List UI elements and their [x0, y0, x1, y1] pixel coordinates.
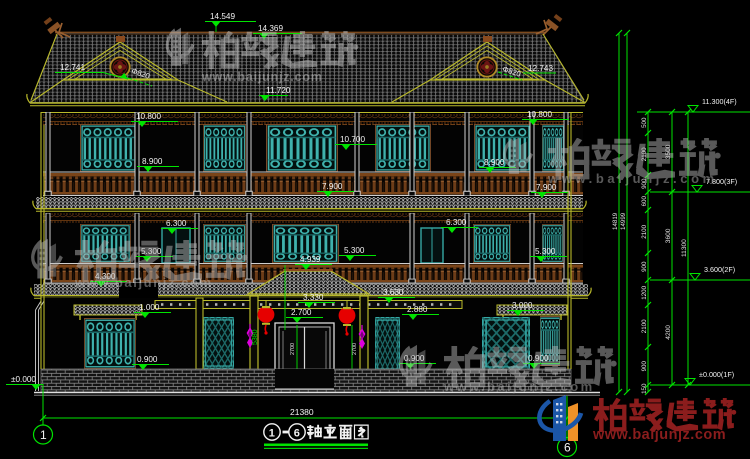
- svg-text:1: 1: [40, 428, 47, 442]
- svg-text:0.900: 0.900: [137, 355, 158, 364]
- svg-text:3600: 3600: [665, 228, 672, 243]
- svg-text:5.300: 5.300: [535, 247, 556, 256]
- svg-text:11.300(4F): 11.300(4F): [702, 97, 737, 106]
- svg-text:www.baijunjz.com: www.baijunjz.com: [443, 379, 595, 394]
- svg-text:1: 1: [269, 427, 275, 439]
- svg-text:500: 500: [641, 117, 648, 128]
- svg-text:10.700: 10.700: [340, 135, 365, 144]
- svg-text:3.600(2F): 3.600(2F): [704, 265, 735, 274]
- svg-text:5.300: 5.300: [344, 246, 365, 255]
- svg-text:www.baijunjz.com: www.baijunjz.com: [201, 70, 323, 84]
- svg-text:14999: 14999: [620, 212, 627, 230]
- svg-text:www.baijunjz.com: www.baijunjz.com: [592, 427, 726, 443]
- svg-text:3.330: 3.330: [303, 293, 324, 302]
- svg-text:www.baijunjz.com: www.baijunjz.com: [547, 171, 718, 186]
- svg-text:14.369: 14.369: [258, 24, 283, 33]
- svg-text:2.700: 2.700: [291, 308, 312, 317]
- svg-text:1.000: 1.000: [139, 303, 160, 312]
- svg-text:4.939: 4.939: [300, 255, 321, 264]
- svg-text:6.300: 6.300: [446, 218, 467, 227]
- svg-text:900: 900: [641, 361, 648, 372]
- svg-text:7.900: 7.900: [322, 182, 343, 191]
- svg-text:8.900: 8.900: [484, 158, 505, 167]
- svg-text:5380: 5380: [252, 329, 259, 345]
- svg-text:10.800: 10.800: [527, 110, 552, 119]
- svg-text:6: 6: [564, 441, 571, 455]
- svg-text:±0.000(1F): ±0.000(1F): [699, 370, 734, 379]
- svg-text:3.000: 3.000: [512, 301, 533, 310]
- svg-text:3.630: 3.630: [383, 288, 404, 297]
- svg-text:11300: 11300: [681, 239, 688, 257]
- svg-text:2700: 2700: [352, 343, 358, 355]
- svg-text:150: 150: [641, 383, 648, 394]
- svg-text:2100: 2100: [641, 319, 648, 333]
- svg-text:2.880: 2.880: [407, 305, 428, 314]
- svg-text:12.743: 12.743: [528, 64, 553, 73]
- svg-text:12.741: 12.741: [60, 63, 85, 72]
- svg-text:1200: 1200: [641, 285, 648, 299]
- svg-text:www.baijunjz.com: www.baijunjz.com: [74, 275, 213, 290]
- svg-text:2700: 2700: [290, 343, 296, 355]
- svg-text:8.900: 8.900: [142, 157, 163, 166]
- svg-text:6: 6: [294, 427, 300, 439]
- svg-text:21380: 21380: [290, 407, 314, 417]
- svg-text:6.300: 6.300: [166, 219, 187, 228]
- svg-text:10.800: 10.800: [136, 112, 161, 121]
- svg-text:14.549: 14.549: [210, 12, 235, 21]
- svg-text:4200: 4200: [665, 325, 672, 340]
- svg-text:14819: 14819: [612, 212, 619, 230]
- svg-text:±0.000: ±0.000: [11, 375, 36, 384]
- svg-text:2100: 2100: [641, 224, 648, 238]
- svg-text:11.720: 11.720: [266, 86, 291, 95]
- svg-text:900: 900: [641, 261, 648, 272]
- svg-text:600: 600: [641, 196, 648, 207]
